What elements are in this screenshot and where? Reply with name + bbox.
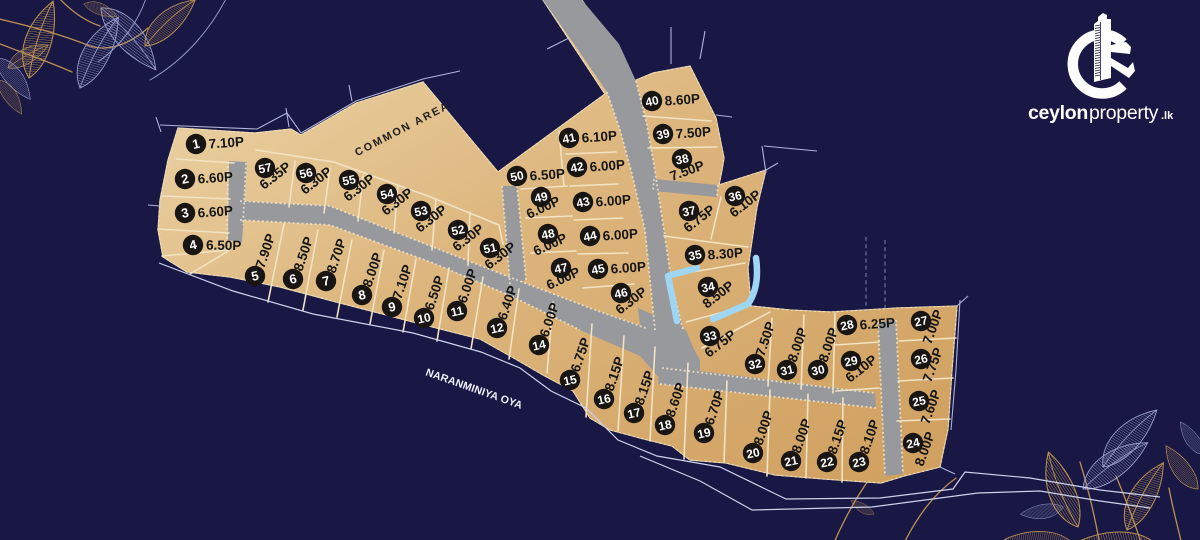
svg-text:property: property — [1089, 102, 1159, 124]
svg-text:7.10P: 7.10P — [208, 134, 244, 151]
svg-text:6.60P: 6.60P — [197, 169, 233, 186]
svg-text:6.00P: 6.00P — [595, 192, 631, 209]
svg-text:6.10P: 6.10P — [581, 128, 617, 145]
svg-text:6.25P: 6.25P — [859, 315, 895, 332]
svg-text:7.50P: 7.50P — [675, 124, 711, 141]
svg-text:ceylon: ceylon — [1028, 102, 1088, 124]
svg-text:6.00P: 6.00P — [610, 259, 646, 276]
svg-text:6.50P: 6.50P — [529, 166, 565, 183]
svg-text:6.50P: 6.50P — [206, 238, 242, 254]
svg-text:.lk: .lk — [1161, 110, 1174, 122]
svg-text:6.00P: 6.00P — [589, 157, 625, 174]
svg-text:8.30P: 8.30P — [707, 245, 743, 262]
svg-text:8.60P: 8.60P — [664, 91, 700, 108]
svg-text:6.00P: 6.00P — [602, 226, 638, 243]
svg-text:6.60P: 6.60P — [197, 203, 233, 220]
